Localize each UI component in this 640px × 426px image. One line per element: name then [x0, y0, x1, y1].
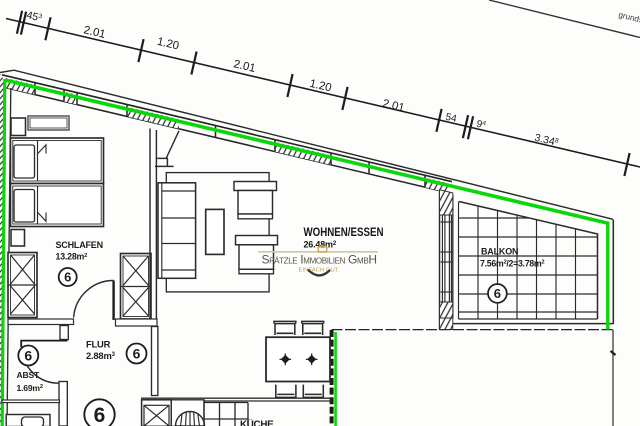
svg-text:2.88m3: 2.88m3 [86, 350, 116, 361]
svg-text:BALKON: BALKON [481, 247, 518, 257]
svg-text:6: 6 [24, 348, 32, 364]
svg-text:SCHLAFEN: SCHLAFEN [56, 240, 103, 250]
svg-text:WOHNEN/ESSEN: WOHNEN/ESSEN [304, 227, 384, 239]
svg-text:6: 6 [133, 346, 141, 362]
svg-text:KÜCHE: KÜCHE [240, 420, 274, 426]
svg-text:1.69m2: 1.69m2 [17, 383, 43, 393]
svg-text:13.28m2: 13.28m2 [56, 252, 88, 262]
svg-text:FLUR: FLUR [86, 339, 111, 350]
svg-text:EINFACH GUT.: EINFACH GUT. [299, 268, 341, 274]
svg-text:6: 6 [94, 404, 106, 426]
svg-text:6: 6 [64, 270, 71, 285]
svg-text:7.56m2/2=3.78m2: 7.56m2/2=3.78m2 [480, 259, 544, 269]
svg-text:26.48m2: 26.48m2 [304, 240, 337, 250]
svg-text:6: 6 [494, 286, 501, 301]
svg-text:ABST: ABST [17, 370, 41, 380]
svg-text:Spätzle Immobilien GmbH: Spätzle Immobilien GmbH [262, 253, 378, 267]
